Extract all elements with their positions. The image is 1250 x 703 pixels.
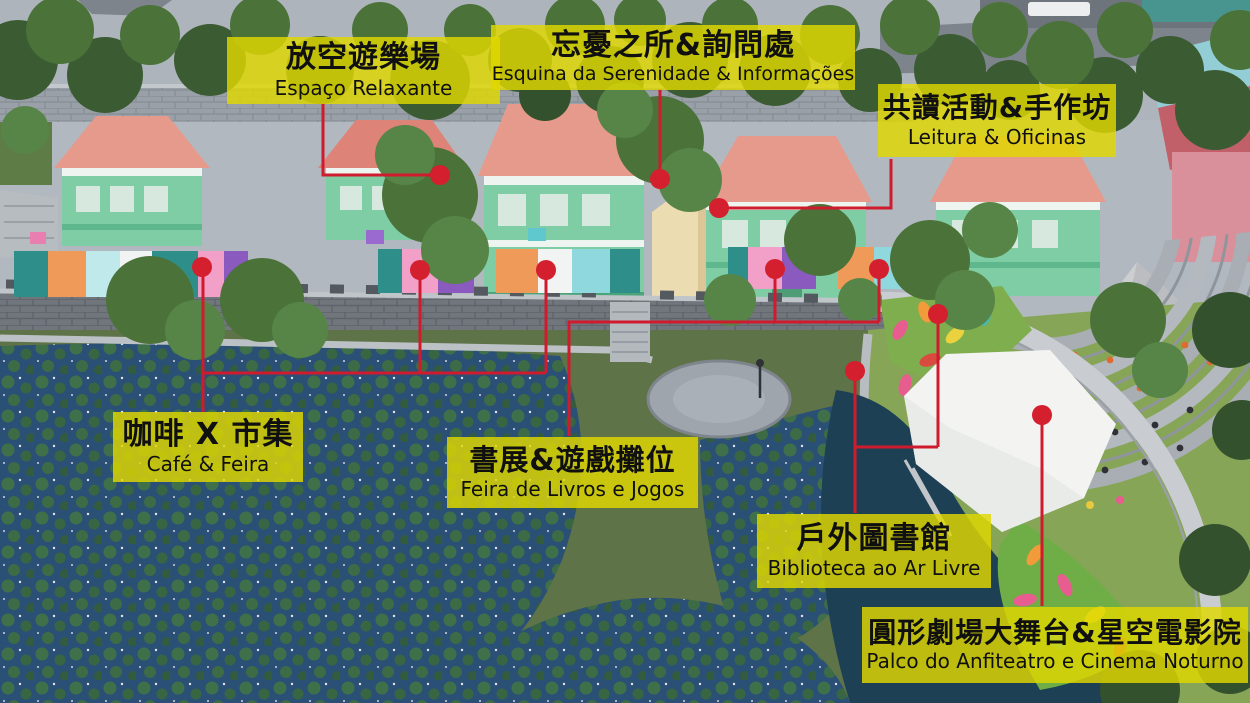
- round-platform: [648, 359, 790, 437]
- label-zh-esquina-serenidade: 忘憂之所&詢問處: [551, 29, 795, 63]
- map-label-cafe-feira: 咖啡 X 市集 Café & Feira: [113, 412, 303, 482]
- marker-dot-feira-livros-1: [765, 259, 785, 279]
- label-zh-feira-livros-jogos: 書展&遊戲攤位: [469, 444, 675, 476]
- label-zh-biblioteca-ar-livre: 戶外圖書館: [797, 522, 952, 556]
- marker-dot-biblioteca-2: [928, 304, 948, 324]
- map-label-esquina-serenidade: 忘憂之所&詢問處 Esquina da Serenidade & Informa…: [491, 25, 855, 90]
- label-zh-cafe-feira: 咖啡 X 市集: [122, 418, 293, 452]
- venue-map-poster: 放空遊樂場 Espaço Relaxante 忘憂之所&詢問處 Esquina …: [0, 0, 1250, 703]
- label-pt-palco-anfiteatro: Palco do Anfiteatro e Cinema Noturno: [866, 650, 1243, 673]
- map-label-espaco-relaxante: 放空遊樂場 Espaço Relaxante: [227, 37, 500, 104]
- marker-dot-feira-livros-2: [869, 259, 889, 279]
- label-zh-espaco-relaxante: 放空遊樂場: [286, 41, 441, 75]
- map-label-biblioteca-ar-livre: 戶外圖書館 Biblioteca ao Ar Livre: [757, 514, 991, 588]
- label-pt-feira-livros-jogos: Feira de Livros e Jogos: [461, 478, 685, 501]
- label-pt-espaco-relaxante: Espaço Relaxante: [275, 77, 453, 100]
- label-zh-leitura-oficinas: 共讀活動&手作坊: [883, 92, 1111, 123]
- marker-dot-leitura-oficinas: [709, 198, 729, 218]
- market-tent: [528, 228, 546, 241]
- label-pt-leitura-oficinas: Leitura & Oficinas: [908, 126, 1086, 149]
- marker-dot-palco-anfiteatro: [1032, 405, 1052, 425]
- marker-dot-esquina-serenidade: [650, 169, 670, 189]
- market-tent: [30, 232, 46, 244]
- marker-dot-cafe-feira-2: [410, 260, 430, 280]
- marker-dot-cafe-feira-3: [536, 260, 556, 280]
- label-zh-palco-anfiteatro: 圓形劇場大舞台&星空電影院: [868, 617, 1241, 648]
- label-pt-cafe-feira: Café & Feira: [147, 453, 270, 476]
- marker-dot-cafe-feira-1: [192, 257, 212, 277]
- marker-dot-biblioteca-1: [845, 361, 865, 381]
- map-label-palco-anfiteatro: 圓形劇場大舞台&星空電影院 Palco do Anfiteatro e Cine…: [862, 607, 1248, 683]
- map-label-leitura-oficinas: 共讀活動&手作坊 Leitura & Oficinas: [878, 84, 1116, 157]
- stairs: [610, 302, 650, 362]
- map-label-feira-livros-jogos: 書展&遊戲攤位 Feira de Livros e Jogos: [447, 437, 698, 508]
- label-pt-biblioteca-ar-livre: Biblioteca ao Ar Livre: [768, 557, 981, 580]
- label-pt-esquina-serenidade: Esquina da Serenidade & Informações: [492, 64, 855, 86]
- market-tent: [366, 230, 384, 244]
- marker-dot-espaco-relaxante: [430, 165, 450, 185]
